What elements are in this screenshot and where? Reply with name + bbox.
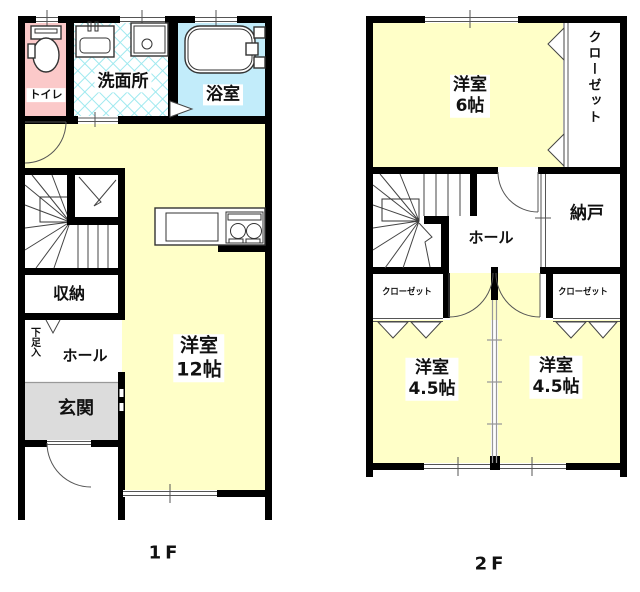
label-bedroom-left: 洋室 4.5帖 [405,358,458,401]
entrance-wall-mark [120,403,124,411]
washer-pan-fixture [131,23,168,56]
entrance-wall-mark [120,389,124,397]
label-closet-left: クローゼット [382,287,432,298]
washbasin-fixture [76,22,114,57]
label-storeroom: 納戸 [570,203,604,224]
label-closet-right: クローゼット [558,287,608,298]
label-hall-1f: ホール [62,347,107,366]
label-storage: 収納 [53,284,85,304]
label-entrance: 玄関 [58,398,94,421]
porch [25,447,118,520]
label-bedroom-6: 洋室 6帖 [450,75,490,118]
label-bathroom: 浴室 [203,84,243,105]
label-floor-2f: 2F [475,554,508,575]
label-toilet: トイレ [27,88,66,102]
label-hall-2f: ホール [468,229,513,248]
floorplan-canvas: トイレ 洗面所 浴室 収納 下足入 ホール 玄関 洋室 12帖 1F 洋室 6帖… [0,0,640,592]
label-bedroom-right: 洋室 4.5帖 [529,356,582,399]
label-shoe-cabinet: 下足入 [27,327,42,357]
bathtub-fixture [185,26,265,73]
label-closet-main: クローゼット [584,30,603,126]
label-washroom: 洗面所 [95,71,152,92]
label-living-12: 洋室 12帖 [173,334,224,382]
label-floor-1f: 1F [149,543,182,564]
kitchen-counter [155,208,265,245]
